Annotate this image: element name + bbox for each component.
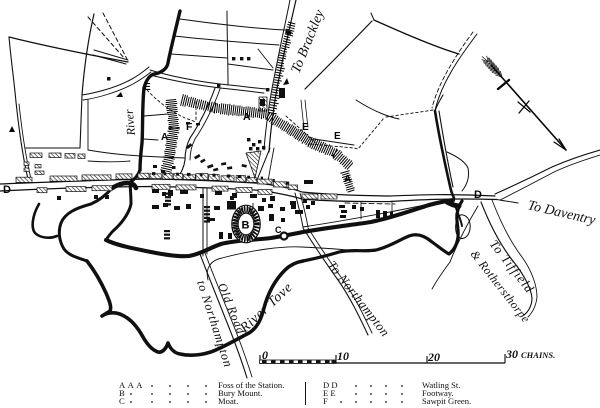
svg-text:E: E — [334, 131, 341, 142]
svg-text:B: B — [242, 220, 250, 232]
svg-text:10: 10 — [337, 349, 349, 363]
svg-text:A: A — [161, 132, 168, 143]
svg-text:River: River — [122, 109, 138, 137]
svg-text:D: D — [3, 184, 11, 196]
svg-text:F: F — [323, 396, 328, 406]
svg-text:C: C — [119, 396, 125, 406]
svg-text:30 CHAINS.: 30 CHAINS. — [505, 347, 555, 361]
svg-text:E: E — [144, 82, 151, 93]
svg-text:D: D — [474, 189, 482, 201]
svg-text:C: C — [275, 225, 282, 235]
svg-text:0: 0 — [262, 348, 268, 362]
svg-text:A: A — [243, 111, 251, 123]
svg-text:E: E — [302, 122, 309, 133]
svg-text:Moat.: Moat. — [218, 396, 238, 406]
svg-text:A: A — [344, 174, 351, 185]
svg-text:Sawpit Green.: Sawpit Green. — [422, 396, 471, 406]
svg-text:20: 20 — [427, 350, 440, 364]
